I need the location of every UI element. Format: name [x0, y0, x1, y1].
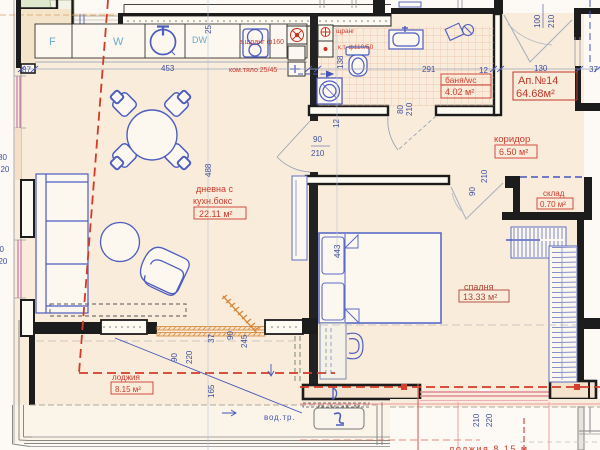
svg-text:80: 80 — [396, 105, 405, 114]
svg-text:ком.тяло 25/45: ком.тяло 25/45 — [229, 67, 277, 74]
svg-text:22.11 м²: 22.11 м² — [199, 209, 233, 219]
svg-text:лоджия 8.15 м: лоджия 8.15 м — [449, 444, 529, 450]
svg-text:138: 138 — [336, 55, 345, 69]
svg-text:120: 120 — [0, 165, 10, 174]
svg-text:443: 443 — [333, 244, 342, 258]
svg-text:90: 90 — [468, 187, 477, 196]
svg-text:6.50 м²: 6.50 м² — [499, 147, 528, 157]
svg-text:90: 90 — [313, 135, 322, 144]
svg-text:64.68м²: 64.68м² — [516, 88, 555, 100]
svg-text:F: F — [49, 36, 56, 48]
svg-text:100: 100 — [533, 14, 542, 28]
svg-text:80: 80 — [0, 245, 4, 254]
svg-text:245: 245 — [240, 334, 249, 348]
svg-text:488: 488 — [204, 163, 213, 177]
svg-text:13.33 м²: 13.33 м² — [463, 292, 497, 302]
svg-text:220: 220 — [0, 257, 8, 266]
svg-text:220: 220 — [485, 413, 494, 427]
svg-text:165: 165 — [207, 384, 216, 398]
svg-text:37: 37 — [207, 334, 216, 343]
svg-text:склад: склад — [543, 189, 565, 198]
svg-text:37: 37 — [589, 65, 598, 74]
svg-text:вод.тр.: вод.тр. — [264, 413, 295, 422]
svg-text:DW: DW — [192, 35, 207, 45]
svg-text:12: 12 — [332, 119, 341, 128]
svg-text:баня/wc: баня/wc — [445, 75, 477, 85]
svg-text:210: 210 — [311, 149, 325, 158]
svg-text:Ап.№14: Ап.№14 — [518, 75, 558, 87]
svg-text:в.щранг ф160: в.щранг ф160 — [239, 39, 284, 46]
svg-text:лоджия: лоджия — [112, 373, 140, 382]
svg-text:4.02 м²: 4.02 м² — [445, 87, 474, 97]
svg-text:210: 210 — [405, 102, 414, 116]
svg-text:W: W — [113, 36, 124, 48]
svg-text:25: 25 — [204, 24, 213, 33]
svg-text:210: 210 — [547, 14, 556, 28]
svg-text:щранг: щранг — [336, 28, 355, 35]
svg-text:8.15 м²: 8.15 м² — [115, 385, 141, 394]
svg-text:291: 291 — [422, 65, 436, 74]
svg-text:210: 210 — [480, 169, 489, 183]
svg-text:90: 90 — [170, 353, 179, 362]
svg-text:дневна с: дневна с — [196, 184, 233, 194]
svg-text:80: 80 — [0, 153, 7, 162]
svg-text:коридор: коридор — [494, 134, 530, 145]
svg-text:0.70 м²: 0.70 м² — [540, 200, 566, 209]
svg-text:87: 87 — [22, 66, 31, 75]
svg-text:210: 210 — [472, 413, 481, 427]
svg-text:453: 453 — [161, 64, 175, 73]
svg-text:кухн.бокс: кухн.бокс — [193, 196, 233, 206]
svg-text:к.т. ф110/50: к.т. ф110/50 — [338, 44, 374, 51]
svg-text:спалня: спалня — [464, 282, 494, 292]
svg-text:90: 90 — [226, 331, 235, 340]
svg-text:220: 220 — [185, 350, 194, 364]
